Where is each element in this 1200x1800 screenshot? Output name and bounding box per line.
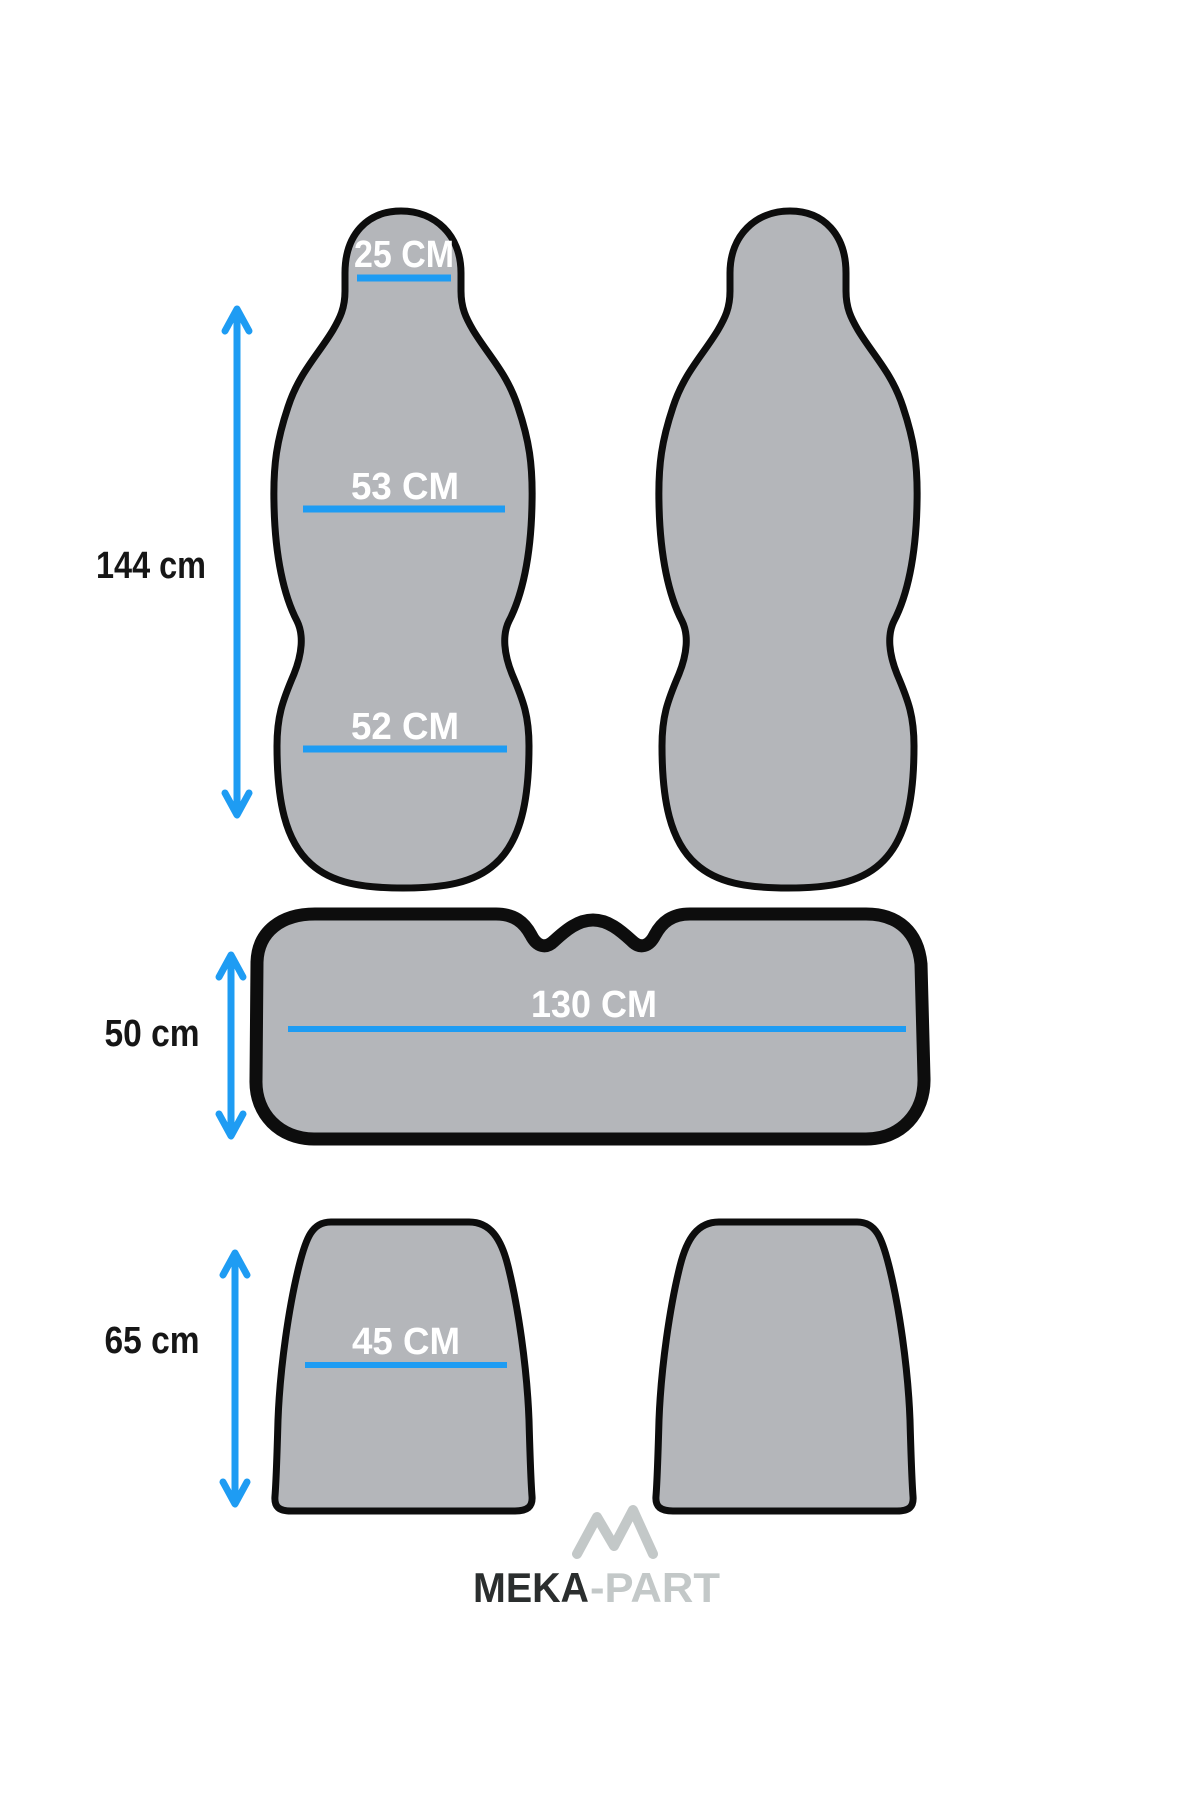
upper-width-label: 53 CM: [351, 466, 459, 508]
rear-bench-height-label: 50 cm: [105, 1013, 200, 1055]
mountain-peaks-icon: [577, 1510, 653, 1554]
front-backrest-height-label: 144 cm: [96, 545, 206, 587]
rear-cushion-height-arrow: [223, 1253, 247, 1504]
rear-cushion-left-cover: 45 CM: [275, 1222, 532, 1511]
rear-bench-backrest-cover: 130 CM: [256, 914, 924, 1139]
rear-cushion-right-shape: [656, 1222, 913, 1511]
front-backrest-height-arrow: [225, 309, 249, 815]
cushion-width-label: 45 CM: [352, 1321, 460, 1363]
logo-text-secondary: -PART: [590, 1564, 720, 1611]
logo-text-primary: MEKA: [473, 1564, 589, 1611]
bench-width-label: 130 CM: [531, 984, 657, 1026]
headrest-width-label: 25 CM: [354, 234, 454, 276]
brand-logo: MEKA -PART: [473, 1510, 720, 1611]
rear-cushion-height-label: 65 cm: [105, 1320, 200, 1362]
front-backrest-right-cover: [659, 211, 917, 888]
front-backrest-left-shape: [274, 211, 532, 888]
rear-bench-height-arrow: [219, 955, 243, 1136]
front-backrest-right-shape: [659, 211, 917, 888]
seat-cover-dimensions-diagram: 25 CM 53 CM 52 CM 144 cm 130 CM 50 cm 45…: [0, 0, 1200, 1800]
front-backrest-left-cover: 25 CM 53 CM 52 CM: [274, 211, 532, 888]
lower-width-label: 52 CM: [351, 706, 459, 748]
rear-cushion-right-cover: [656, 1222, 913, 1511]
